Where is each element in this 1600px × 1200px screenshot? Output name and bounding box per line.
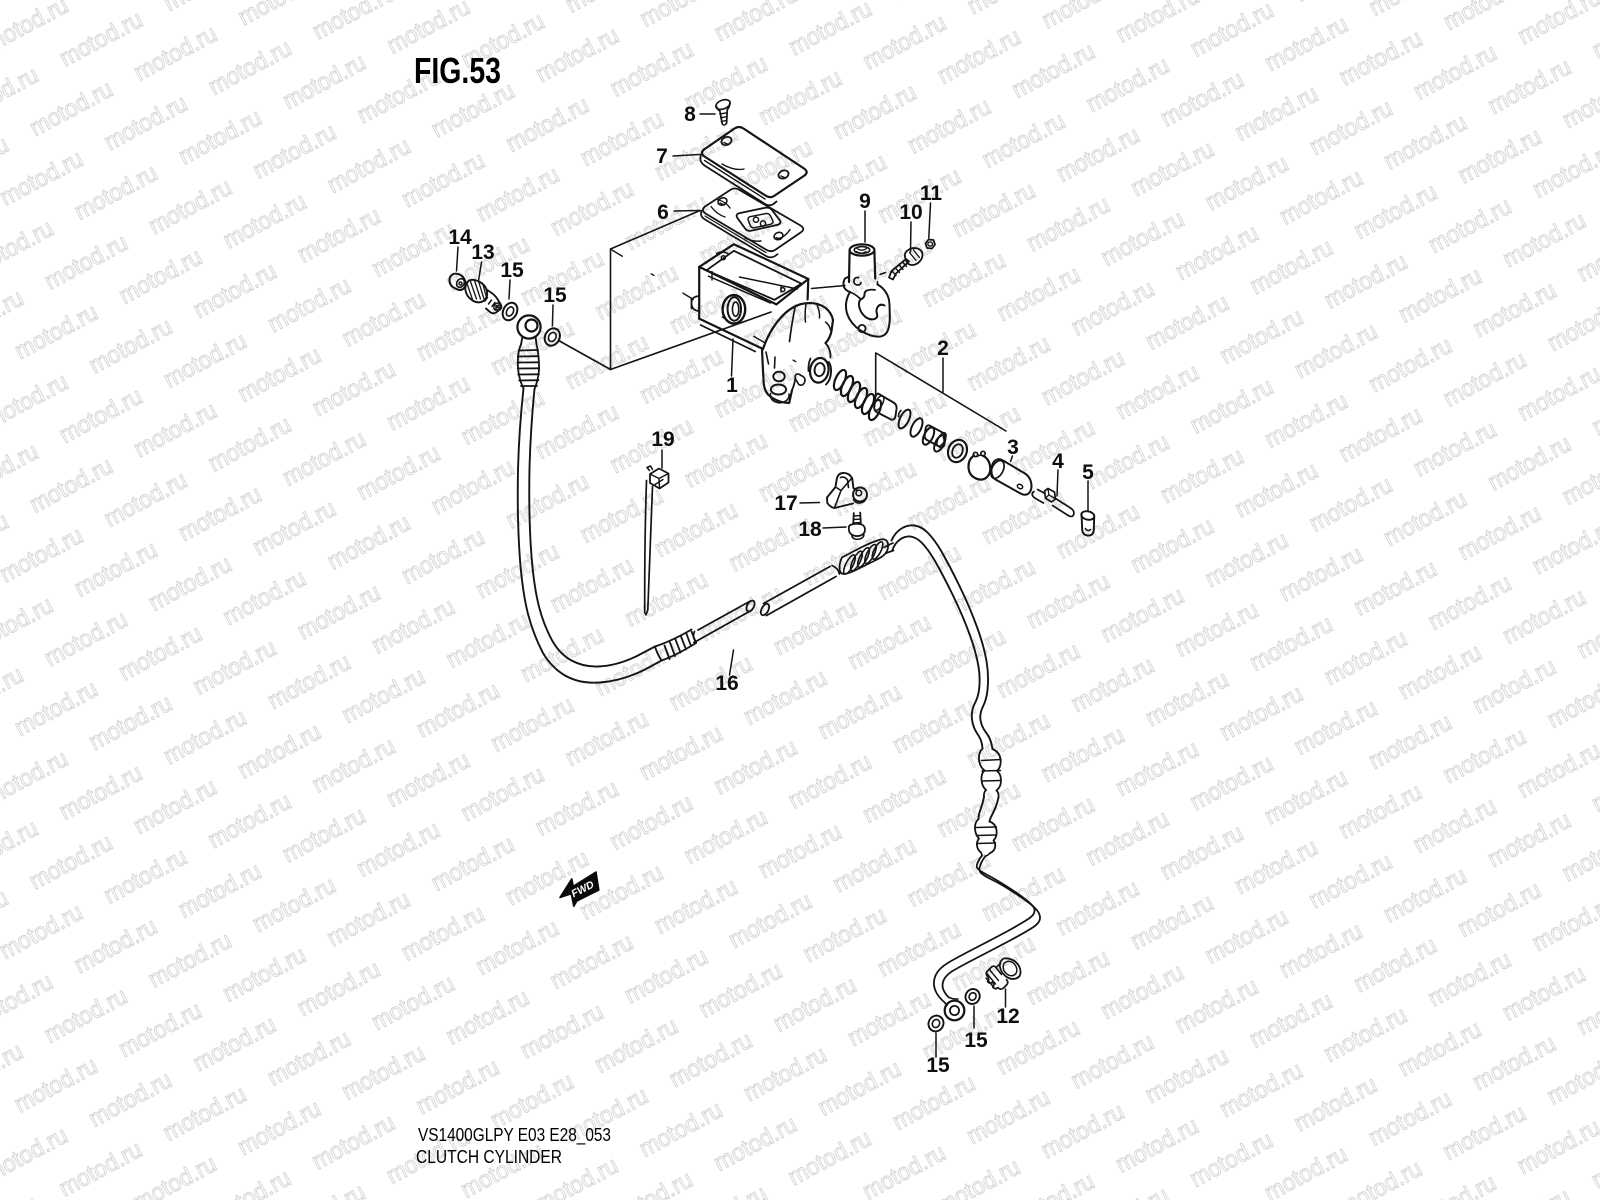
svg-text:17: 17 [774, 492, 797, 515]
svg-text:FIG.53: FIG.53 [414, 50, 501, 91]
svg-text:13: 13 [471, 241, 494, 264]
svg-text:1: 1 [726, 374, 738, 397]
svg-text:15: 15 [926, 1054, 950, 1077]
svg-text:11: 11 [920, 182, 943, 205]
svg-text:3: 3 [1007, 436, 1019, 459]
svg-text:5: 5 [1082, 461, 1094, 484]
svg-text:16: 16 [715, 672, 738, 695]
svg-text:CLUTCH CYLINDER: CLUTCH CYLINDER [416, 1146, 562, 1167]
svg-text:9: 9 [859, 190, 871, 213]
svg-text:15: 15 [500, 259, 524, 282]
svg-text:15: 15 [964, 1029, 988, 1052]
svg-text:19: 19 [651, 428, 674, 451]
svg-text:7: 7 [656, 145, 668, 168]
svg-text:14: 14 [448, 226, 472, 249]
svg-text:VS1400GLPY E03 E28_053: VS1400GLPY E03 E28_053 [418, 1124, 611, 1146]
svg-text:8: 8 [684, 103, 696, 126]
svg-text:4: 4 [1052, 450, 1064, 473]
svg-text:6: 6 [657, 201, 669, 224]
svg-text:12: 12 [996, 1005, 1019, 1028]
svg-text:2: 2 [937, 337, 949, 360]
svg-text:15: 15 [543, 284, 567, 307]
svg-text:18: 18 [798, 518, 822, 541]
